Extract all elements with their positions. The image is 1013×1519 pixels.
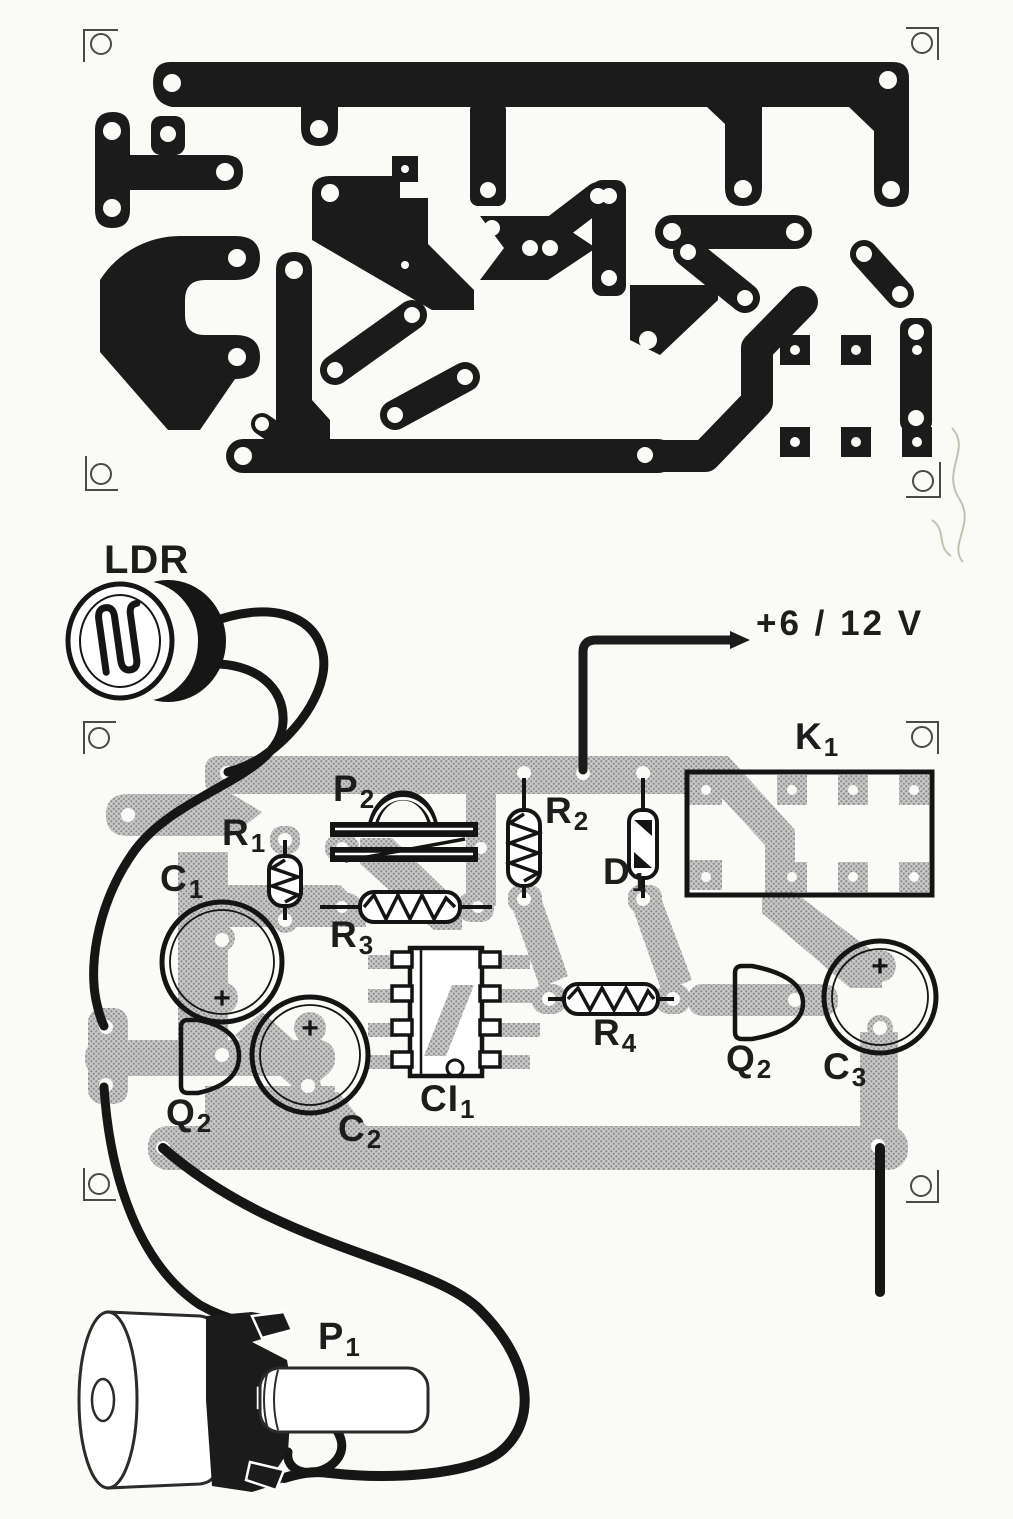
label-subscript: 2 — [574, 806, 589, 836]
label-text: R — [545, 790, 573, 831]
label-r4: R4 — [593, 1014, 636, 1051]
corner-mark-icon — [911, 1176, 931, 1196]
label-p1: P1 — [318, 1318, 360, 1356]
label-c2: C2 — [338, 1110, 381, 1147]
plus-mark: + — [213, 982, 231, 1015]
label-subscript: 3 — [852, 1062, 867, 1092]
scanned-figure: + + + LDR +6 / 12 V K1 P2 R — [0, 0, 1013, 1519]
label-ci1: CI1 — [420, 1080, 474, 1117]
label-subscript: 3 — [359, 930, 374, 960]
label-k1: K1 — [795, 718, 838, 755]
copper-trace — [395, 377, 465, 415]
label-text: C — [160, 858, 188, 899]
label-c3: C3 — [823, 1048, 866, 1085]
label-r2: R2 — [545, 792, 588, 829]
p1-shaft — [260, 1368, 428, 1432]
corner-mark-icon — [913, 471, 933, 491]
label-r1: R1 — [222, 814, 265, 851]
figure-artwork: + + + — [0, 0, 1013, 1519]
label-subscript: 1 — [189, 874, 204, 904]
label-d1: D1 — [603, 853, 646, 890]
arrow-icon — [730, 631, 750, 649]
label-text: +6 / 12 V — [756, 604, 924, 643]
label-text: Q — [166, 1092, 196, 1133]
plus-mark: + — [301, 1012, 319, 1045]
label-text: R — [593, 1012, 621, 1053]
potentiometer-p1 — [79, 1312, 428, 1492]
label-subscript: 2 — [757, 1054, 772, 1084]
supply-wire — [583, 631, 750, 770]
label-subscript: 1 — [632, 867, 647, 897]
pcb-copper-view — [84, 28, 965, 562]
label-subscript: 4 — [622, 1028, 637, 1058]
label-text: R — [222, 812, 250, 853]
label-subscript: 1 — [345, 1332, 360, 1362]
label-r3: R3 — [330, 916, 373, 953]
label-text: CI — [420, 1078, 459, 1119]
label-q2-left: Q2 — [166, 1094, 211, 1131]
resistor-r2 — [508, 778, 540, 898]
label-text: P — [318, 1316, 344, 1358]
label-text: D — [603, 851, 631, 892]
label-subscript: 2 — [197, 1108, 212, 1138]
copper-trace — [864, 254, 900, 294]
plus-mark: + — [871, 950, 889, 983]
label-subscript: 1 — [824, 732, 839, 762]
copper-trace — [335, 315, 412, 370]
corner-mark-icon — [89, 728, 109, 748]
label-text: P — [333, 768, 359, 809]
label-text: C — [823, 1046, 851, 1087]
label-subscript: 2 — [360, 784, 375, 814]
resistor-r4 — [548, 984, 674, 1014]
label-q2-right: Q2 — [726, 1040, 771, 1077]
label-supply: +6 / 12 V — [756, 606, 924, 641]
label-text: C — [338, 1108, 366, 1149]
corner-mark-icon — [912, 727, 932, 747]
ic-ci1 — [392, 948, 500, 1076]
corner-mark-icon — [91, 34, 111, 54]
label-subscript: 1 — [251, 828, 266, 858]
label-text: LDR — [104, 538, 189, 582]
corner-mark-icon — [91, 464, 111, 484]
pencil-squiggle — [932, 428, 965, 562]
label-p2: P2 — [333, 770, 374, 807]
label-text: Q — [726, 1038, 756, 1079]
label-text: K — [795, 716, 823, 757]
label-subscript: 1 — [460, 1094, 475, 1124]
label-c1: C1 — [160, 860, 203, 897]
corner-mark-icon — [912, 33, 932, 53]
label-subscript: 2 — [367, 1124, 382, 1154]
label-ldr: LDR — [104, 540, 189, 580]
copper-top-rail — [153, 62, 909, 207]
label-text: R — [330, 914, 358, 955]
corner-mark-icon — [89, 1174, 109, 1194]
